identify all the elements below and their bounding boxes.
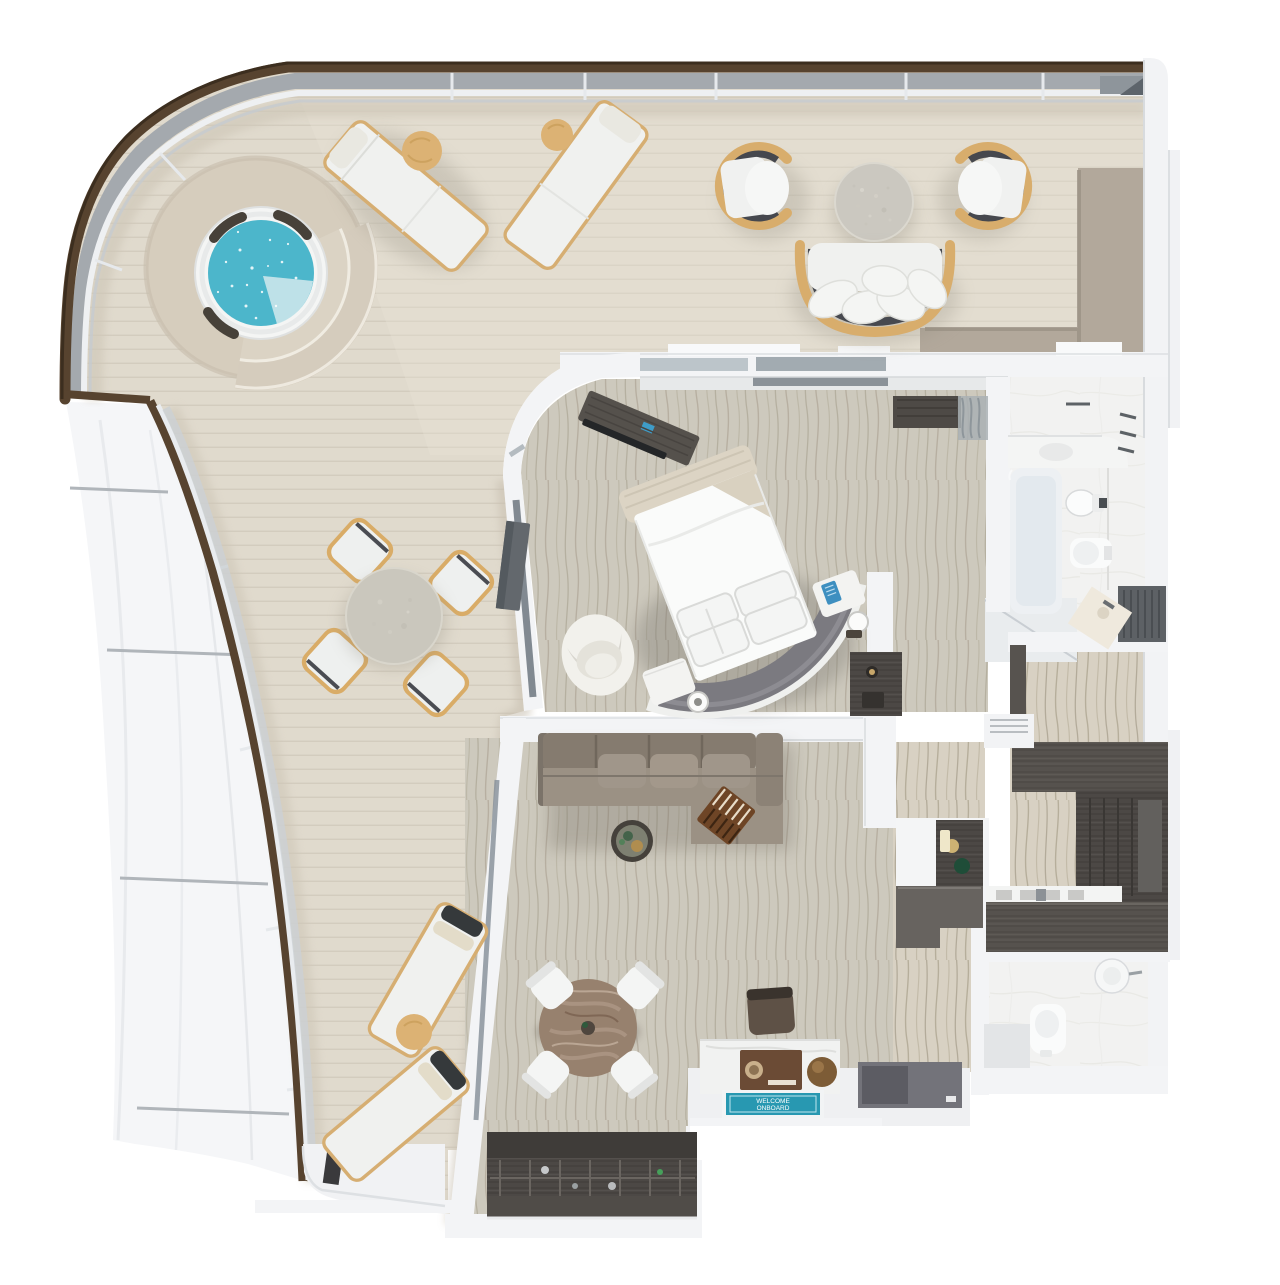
svg-text:ONBOARD: ONBOARD	[757, 1105, 790, 1112]
svg-text:WELCOME: WELCOME	[756, 1098, 790, 1105]
